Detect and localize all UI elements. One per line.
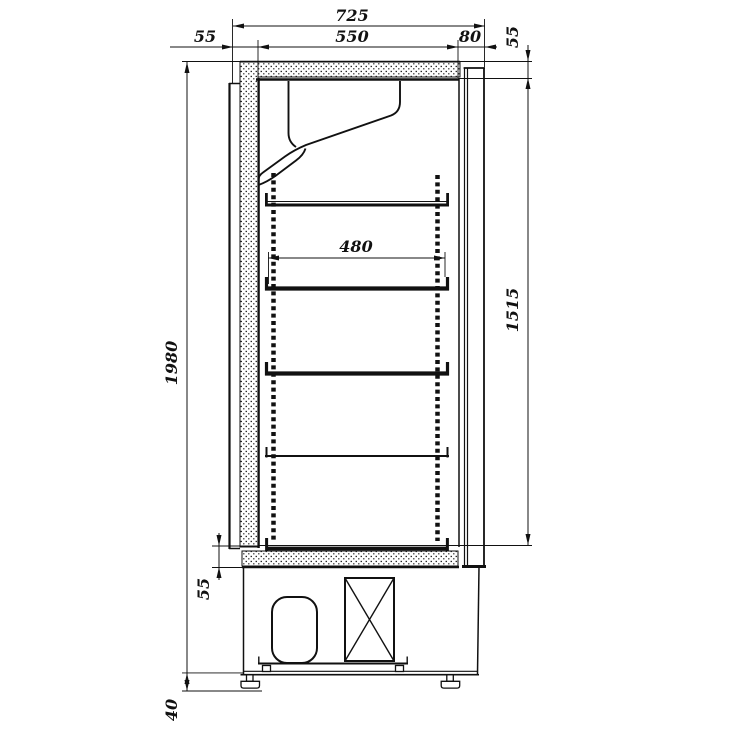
dim-label-interior-depth: 550	[335, 27, 368, 46]
evaporator-duct	[259, 81, 401, 185]
machine-compartment	[241, 567, 480, 675]
compressor	[272, 597, 317, 663]
dim-label-rear-duct: 80	[458, 27, 481, 46]
rear-panel	[462, 68, 486, 567]
foot-stem-right	[447, 675, 454, 682]
dim-label-front-wall: 55	[194, 27, 216, 46]
cabinet-side-section-drawing: 725 550 80 55 55 1515 1980 55 40 480	[0, 0, 734, 756]
duct-lower-sheet	[259, 149, 306, 186]
top-insulation	[240, 62, 460, 77]
foot-pad-left	[241, 681, 260, 688]
bottom-shelf	[266, 538, 448, 551]
dim-label-interior-height: 1515	[503, 288, 522, 333]
shelf-3	[265, 362, 449, 376]
foot-pad-right	[441, 681, 460, 688]
shelf-rails	[274, 173, 438, 541]
shelf-4	[265, 447, 449, 458]
dim-label-shelf-depth: 480	[339, 237, 372, 256]
dim-label-overall-height: 1980	[162, 341, 181, 386]
shelf-2	[265, 277, 449, 291]
foot-stem-left	[247, 675, 254, 682]
bottom-insulation	[242, 551, 458, 566]
shelf-1	[265, 193, 449, 207]
technical-drawing-page: 725 550 80 55 55 1515 1980 55 40 480	[0, 0, 734, 756]
plate-support-left	[263, 666, 271, 672]
feet	[241, 675, 460, 688]
cabinet-insulated-shell	[240, 62, 532, 568]
dim-label-bottom-wall: 55	[194, 578, 213, 600]
dim-label-top-wall: 55	[503, 26, 522, 48]
dim-label-overall-depth: 725	[335, 6, 368, 25]
plate-support-right	[396, 666, 404, 672]
compartment-rear	[478, 567, 480, 674]
door-panel	[229, 83, 240, 549]
duct-upper-sheet	[259, 81, 401, 180]
front-wall-insulation	[240, 62, 258, 547]
condenser	[345, 578, 394, 661]
dim-label-feet-height: 40	[162, 699, 181, 721]
duct-front-edge	[289, 81, 297, 147]
